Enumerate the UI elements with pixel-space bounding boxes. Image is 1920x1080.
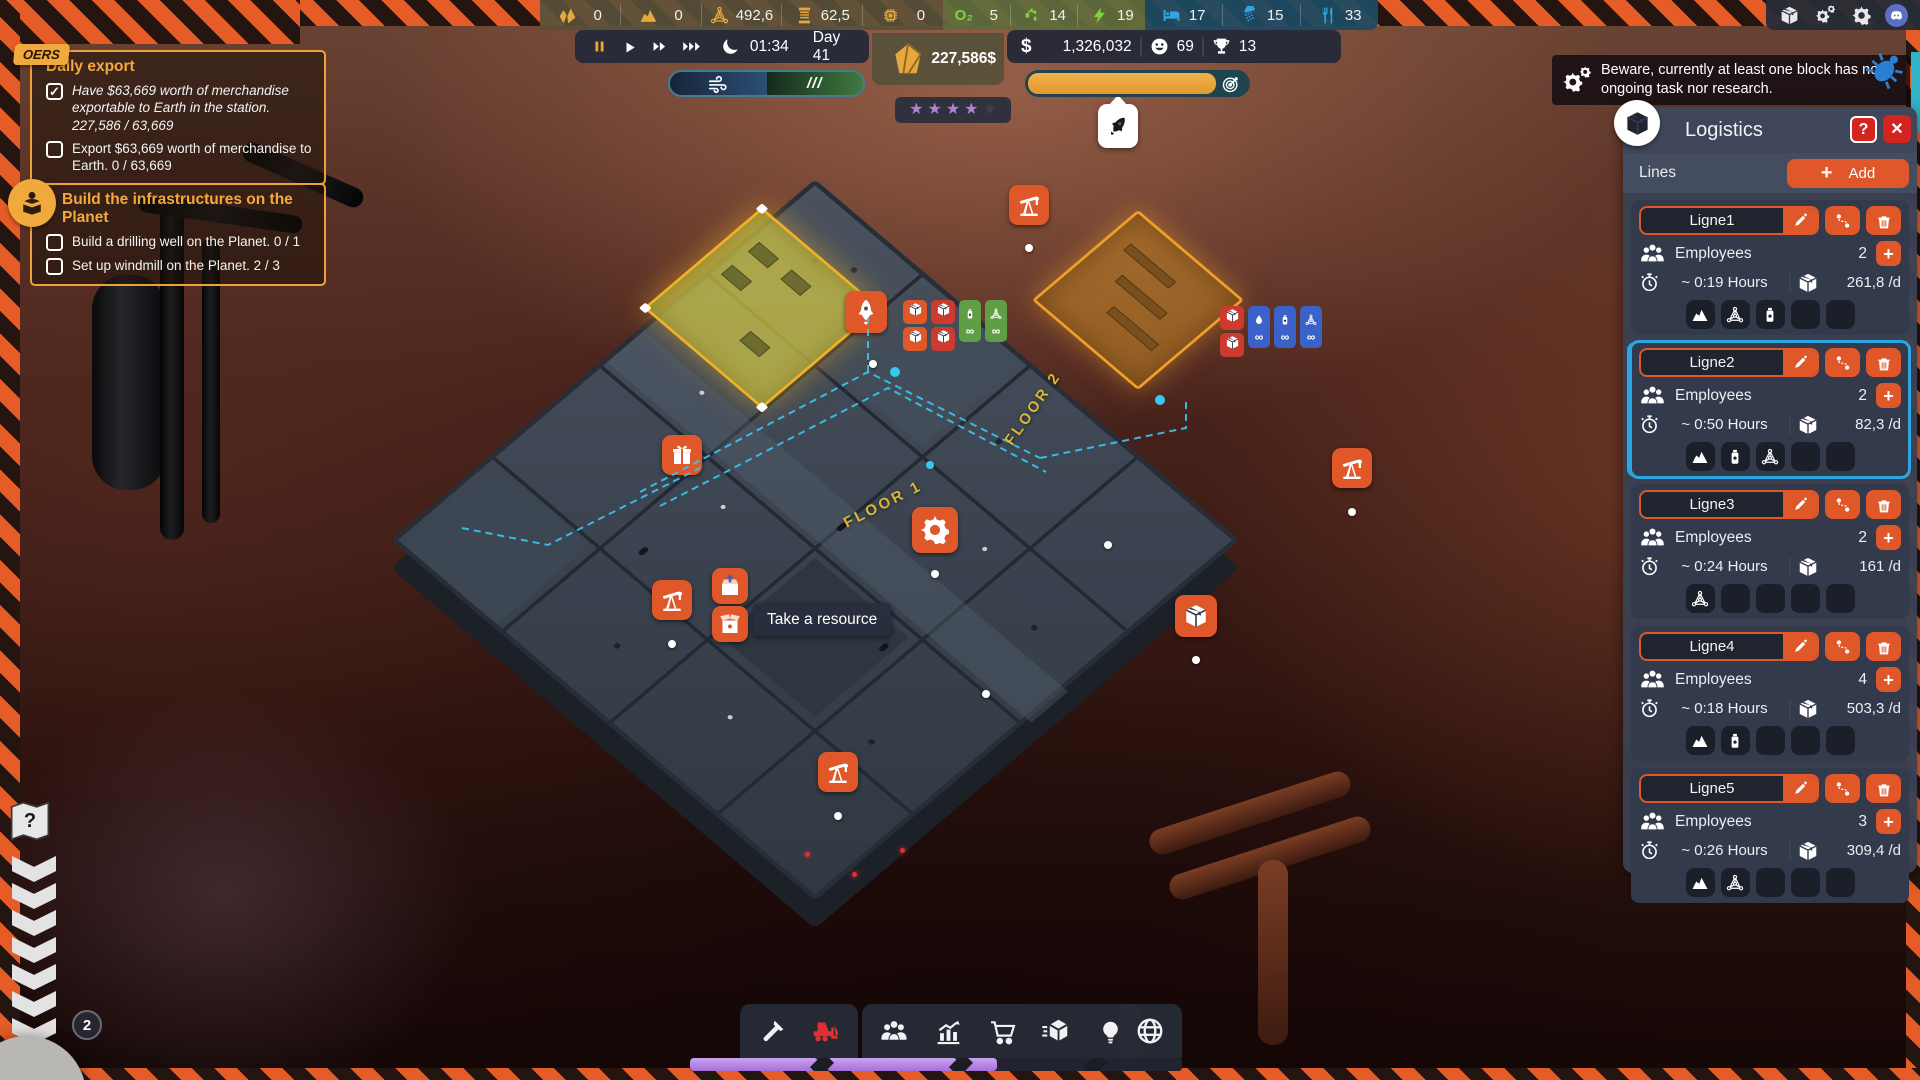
box-tag-icon[interactable] [1220, 306, 1244, 330]
storage-filter-tags[interactable]: ∞ ∞ [903, 300, 1007, 351]
time-control-bar: 01:34 Day 41 [575, 30, 869, 63]
research-button[interactable] [1814, 3, 1838, 27]
gear-icon [919, 514, 951, 546]
rocket-icon [852, 298, 880, 326]
crew-button[interactable] [878, 1015, 910, 1047]
resource-value: 62,5 [821, 7, 850, 24]
line-name-field[interactable]: Ligne1 [1641, 208, 1783, 233]
rocket-marker[interactable] [845, 291, 887, 333]
build-button[interactable] [756, 1015, 788, 1047]
slot-gold-ore-icon[interactable] [1686, 868, 1715, 897]
rust-pipe [1258, 860, 1288, 1045]
canister-icon [1279, 313, 1291, 331]
resource-counter: 33 [1300, 4, 1378, 26]
package-icon [1797, 698, 1819, 720]
star-icon: ★ [964, 102, 978, 118]
science-icon [710, 6, 729, 25]
cycle-duration: ~ 0:26 Hours [1666, 842, 1783, 859]
employees-count: 3 [1858, 813, 1867, 831]
resource-counter: 0 [620, 4, 701, 26]
delete-line-button[interactable] [1866, 206, 1901, 235]
happiness-icon [1150, 37, 1169, 56]
resource-value: 0 [665, 7, 683, 24]
resource-value: 15 [1266, 7, 1284, 24]
cycle-duration: ~ 0:19 Hours [1666, 274, 1783, 291]
trophy-icon [1212, 37, 1231, 56]
slot-canister-icon[interactable] [1756, 300, 1785, 329]
logistics-line-card[interactable]: Ligne4 Employees 4 + ~ 0:18 Hours 503,3 … [1631, 626, 1909, 761]
resource-counter: 0 [540, 4, 620, 26]
gold-nugget-icon [889, 40, 927, 78]
boxput-icon [718, 574, 742, 598]
add-employee-button[interactable]: + [1876, 241, 1901, 266]
people-icon [879, 1016, 909, 1046]
package-icon [1779, 5, 1800, 26]
logistics-button[interactable] [1040, 1015, 1072, 1047]
quest-title: Build the infrastructures on the Planet [62, 191, 312, 227]
employees-icon [1639, 808, 1666, 835]
ff2-icon [652, 39, 669, 54]
empty-slot[interactable] [1756, 868, 1785, 897]
resource-counter: 19 [1077, 4, 1145, 26]
export-value-counter: 227,586$ [872, 33, 1004, 85]
slot-science-icon[interactable] [1756, 442, 1785, 471]
tutorial-badge [8, 179, 56, 227]
edit-name-button[interactable] [1783, 492, 1817, 517]
resource-value: 17 [1188, 7, 1206, 24]
package-icon [1797, 556, 1819, 578]
edit-name-button[interactable] [1783, 208, 1817, 233]
fast-forward-button[interactable] [650, 35, 671, 59]
employees-icon [1639, 524, 1666, 551]
daily-rate: 503,3 /d [1825, 700, 1901, 717]
star-icon: ★ [909, 102, 923, 118]
wind-icon [707, 73, 729, 95]
empty-slot[interactable] [1756, 726, 1785, 755]
happiness-value: 69 [1177, 38, 1194, 56]
xp-progress-bar [690, 1058, 1182, 1071]
station-rating: ★★★★★ [895, 97, 1011, 123]
resource-value: 492,6 [736, 7, 774, 24]
night-icon [721, 37, 740, 56]
discord-icon [1889, 8, 1904, 23]
lines-header: Lines + Add [1623, 153, 1917, 193]
delete-line-button[interactable] [1866, 490, 1901, 519]
empty-slot[interactable] [1756, 584, 1785, 613]
slot-canister-icon[interactable] [1721, 442, 1750, 471]
daily-rate: 82,3 /d [1825, 416, 1901, 433]
personread-icon [18, 189, 46, 217]
resource-slots [1639, 442, 1901, 471]
box-tag-icon[interactable] [931, 327, 955, 351]
discord-button[interactable] [1885, 4, 1908, 27]
system-tray [1766, 0, 1920, 30]
canister-icon [964, 307, 976, 325]
resource-value: 14 [1048, 7, 1066, 24]
resource-value: 0 [584, 7, 602, 24]
pump-icon [825, 759, 851, 785]
ff3-icon [681, 39, 703, 54]
resource-tag-canister[interactable]: ∞ [1274, 306, 1296, 348]
empty-slot[interactable] [1791, 300, 1820, 329]
task-text: Have $63,669 worth of merchandise export… [72, 82, 314, 134]
empty-slot[interactable] [1826, 442, 1855, 471]
science-icon [990, 307, 1002, 325]
resource-counter: 14 [1010, 4, 1078, 26]
add-employee-button[interactable]: + [1876, 809, 1901, 834]
oil-pump-marker[interactable] [1009, 185, 1049, 225]
resource-tag-water[interactable]: ∞ [1248, 306, 1270, 348]
resource-counter: 0 [862, 4, 943, 26]
task-checkbox[interactable]: ✓ [46, 83, 63, 100]
build-toolbar [740, 1004, 858, 1058]
delete-line-button[interactable] [1866, 632, 1901, 661]
employees-label: Employees [1675, 529, 1849, 547]
box-marker[interactable] [1175, 595, 1217, 637]
box-tag-icon[interactable] [903, 327, 927, 351]
wind-indicator[interactable] [670, 72, 767, 95]
daily-rate: 261,8 /d [1825, 274, 1901, 291]
line-name-field[interactable]: Ligne3 [1641, 492, 1783, 517]
delete-line-button[interactable] [1866, 774, 1901, 803]
task-checkbox[interactable] [46, 141, 63, 158]
oil-pump-marker[interactable] [652, 580, 692, 620]
resource-value: 19 [1116, 7, 1134, 24]
level-badge: 2 [72, 1010, 102, 1040]
logistics-line-card[interactable]: Ligne3 Employees 2 + ~ 0:24 Hours 161 /d [1631, 484, 1909, 619]
slot-gold-ore-icon[interactable] [1686, 300, 1715, 329]
oxygen-icon: O₂ [955, 7, 973, 24]
cart-icon [988, 1017, 1017, 1046]
cycle-duration: ~ 0:18 Hours [1666, 700, 1783, 717]
resource-slots [1639, 868, 1901, 897]
gears-icon [1562, 65, 1592, 95]
gear-icon [1851, 5, 1872, 26]
fuel-tank [92, 275, 166, 490]
target-icon [1216, 74, 1241, 94]
gear-marker[interactable] [912, 507, 958, 553]
resource-slots [1639, 726, 1901, 755]
dollar-icon: $ [1021, 36, 1032, 58]
resource-counter: 15 [1222, 4, 1300, 26]
package-icon [936, 329, 951, 349]
management-toolbar [862, 1004, 1142, 1058]
employees-count: 2 [1858, 529, 1867, 547]
trophy-value: 13 [1239, 38, 1256, 56]
empty-slot[interactable] [1826, 300, 1855, 329]
quest-panel-planet[interactable]: Build the infrastructures on the Planet … [30, 183, 326, 286]
resource-value: 5 [980, 7, 998, 24]
task-text: Export $63,669 worth of merchandise to E… [72, 140, 314, 175]
line-name-field[interactable]: Ligne4 [1641, 634, 1783, 659]
employees-icon [1639, 382, 1666, 409]
line-name-field[interactable]: Ligne5 [1641, 776, 1783, 801]
empty-slot[interactable] [1791, 726, 1820, 755]
task-text: Set up windmill on the Planet. 2 / 3 [72, 257, 280, 274]
gears2-icon [1815, 4, 1837, 26]
energy-icon [1090, 6, 1109, 25]
quest-title: Daily export [46, 58, 314, 76]
stopwatch-icon [1639, 414, 1660, 435]
quest-task: ✓Have $63,669 worth of merchandise expor… [46, 82, 314, 134]
logistics-icon [1614, 100, 1660, 146]
empty-slot[interactable] [1791, 868, 1820, 897]
planet-button[interactable] [1134, 1015, 1166, 1047]
employees-label: Employees [1675, 387, 1849, 405]
employees-icon [1639, 240, 1666, 267]
edit-route-button[interactable] [1825, 348, 1860, 377]
chart-icon [934, 1017, 963, 1046]
edit-name-button[interactable] [1783, 350, 1817, 375]
demolish-button[interactable] [810, 1015, 842, 1047]
rocket-pin[interactable] [1098, 104, 1138, 148]
package-icon [908, 329, 923, 349]
star-icon: ★ [946, 102, 960, 118]
electronics-icon [881, 6, 900, 25]
empty-slot[interactable] [1826, 868, 1855, 897]
map-help-button[interactable]: ? [10, 798, 50, 844]
employees-icon [1639, 666, 1666, 693]
crystal-icon [558, 6, 577, 25]
package-icon [1183, 603, 1209, 629]
package-icon [1797, 840, 1819, 862]
orders-badge: OERS [13, 44, 70, 65]
close-button[interactable]: ✕ [1883, 115, 1911, 143]
resource-slots [1639, 584, 1901, 613]
pause-button[interactable] [589, 35, 610, 59]
goal-progress-fill [1028, 73, 1216, 94]
employees-count: 2 [1858, 387, 1867, 405]
gold-ore-icon [639, 6, 658, 25]
employees-label: Employees [1675, 245, 1849, 263]
storage-filter-tags[interactable]: ∞ ∞ ∞ [1220, 306, 1322, 357]
market-button[interactable] [986, 1015, 1018, 1047]
slot-science-icon[interactable] [1721, 300, 1750, 329]
logistics-header: Logistics ? ✕ [1623, 107, 1917, 153]
put-resource-button[interactable] [712, 568, 748, 604]
blueprints-button[interactable] [1778, 3, 1802, 27]
pump-icon [659, 587, 685, 613]
moon-icon [721, 37, 740, 56]
cycle-duration: ~ 0:24 Hours [1666, 558, 1783, 575]
slot-canister-icon[interactable] [1721, 726, 1750, 755]
quest-task: Build a drilling well on the Planet. 0 /… [46, 233, 314, 251]
water-icon [1022, 6, 1041, 25]
edit-route-button[interactable] [1825, 632, 1860, 661]
rocket-icon [1106, 114, 1130, 138]
shower-icon [1240, 6, 1259, 25]
pump-icon [1016, 192, 1042, 218]
help-button[interactable]: ? [1850, 116, 1877, 143]
globe-icon [1135, 1016, 1165, 1046]
edit-route-button[interactable] [1825, 774, 1860, 803]
alert-banner[interactable]: Beware, currently at least one block has… [1552, 55, 1910, 105]
star-icon: ★ [983, 102, 997, 118]
thread-icon [795, 6, 814, 25]
boxtake-icon [718, 612, 742, 636]
add-line-button[interactable]: + Add [1787, 159, 1909, 188]
life-support-resource-bar: O₂51419 [943, 0, 1145, 30]
tooltip: Take a resource [753, 603, 891, 636]
growth-indicator[interactable]: /// [767, 72, 864, 95]
status-bar: $ 1,326,032 69 13 [1007, 30, 1341, 63]
package-icon [1797, 414, 1819, 436]
gift-icon [670, 443, 694, 467]
resource-tag-canister[interactable]: ∞ [959, 300, 981, 342]
stopwatch-icon [1639, 840, 1660, 861]
stopwatch-icon [1639, 698, 1660, 719]
money-value: 1,326,032 [1040, 38, 1132, 56]
settings-button[interactable] [1849, 3, 1873, 27]
drop-icon [1253, 313, 1265, 331]
dozer-icon [810, 1015, 842, 1047]
add-employee-button[interactable]: + [1876, 383, 1901, 408]
cycle-duration: ~ 0:50 Hours [1666, 416, 1783, 433]
employees-count: 4 [1858, 671, 1867, 689]
box-tag-icon[interactable] [1220, 333, 1244, 357]
oil-pump-marker[interactable] [818, 752, 858, 792]
empty-slot[interactable] [1826, 726, 1855, 755]
game-screen: FLOOR 1 FLOOR 2 ∞ ∞ [0, 0, 1920, 1080]
box-tag-icon[interactable] [903, 300, 927, 324]
edit-name-button[interactable] [1783, 776, 1817, 801]
package-icon [1225, 308, 1240, 328]
cube-icon [1041, 1016, 1071, 1046]
resource-value: 33 [1344, 7, 1362, 24]
plus-icon: + [1821, 163, 1833, 183]
star-icon: ★ [927, 102, 941, 118]
resource-counter: 17 [1145, 4, 1222, 26]
empty-slot[interactable] [1791, 442, 1820, 471]
package-icon [1225, 335, 1240, 355]
task-checkbox[interactable] [46, 234, 63, 251]
edit-name-button[interactable] [1783, 634, 1817, 659]
lines-label: Lines [1639, 164, 1676, 182]
task-text: Build a drilling well on the Planet. 0 /… [72, 233, 300, 250]
employees-label: Employees [1675, 671, 1849, 689]
comfort-resource-bar: 171533 [1145, 0, 1378, 30]
slot-science-icon[interactable] [1721, 868, 1750, 897]
slot-gold-ore-icon[interactable] [1686, 442, 1715, 471]
pump-icon [1339, 455, 1365, 481]
package-icon [1797, 272, 1819, 294]
resource-counter: 492,6 [701, 4, 782, 26]
statistics-button[interactable] [932, 1015, 964, 1047]
resource-tag-science[interactable]: ∞ [985, 300, 1007, 342]
panel-title: Logistics [1685, 119, 1763, 142]
hammer-icon [758, 1017, 786, 1045]
hazard-border-corner [0, 0, 300, 44]
slot-science-icon[interactable] [1686, 584, 1715, 613]
play-icon [623, 40, 637, 54]
edit-route-button[interactable] [1825, 206, 1860, 235]
planet-toolbar [1118, 1004, 1182, 1058]
fastest-forward-button[interactable] [681, 35, 703, 59]
package-icon [936, 302, 951, 322]
slot-gold-ore-icon[interactable] [1686, 726, 1715, 755]
play-button[interactable] [620, 35, 641, 59]
employees-label: Employees [1675, 813, 1849, 831]
resource-counter: 62,5 [781, 4, 862, 26]
empty-slot[interactable] [1721, 584, 1750, 613]
daily-rate: 161 /d [1825, 558, 1901, 575]
export-value: 227,586$ [931, 50, 996, 68]
logistics-line-card[interactable]: Ligne2 Employees 2 + ~ 0:50 Hours 82,3 /… [1631, 342, 1909, 477]
quest-panel-daily-export[interactable]: OERS Daily export ✓Have $63,669 worth of… [30, 50, 326, 185]
logistics-line-card[interactable]: Ligne1 Employees 2 + ~ 0:19 Hours 261,8 … [1631, 200, 1909, 335]
take-resource-button[interactable] [712, 606, 748, 642]
quest-task: Export $63,669 worth of merchandise to E… [46, 140, 314, 175]
logistics-line-card[interactable]: Ligne5 Employees 3 + ~ 0:26 Hours 309,4 … [1631, 768, 1909, 903]
supply-drop-marker[interactable] [662, 435, 702, 475]
resource-counter: O₂5 [943, 4, 1010, 26]
stopwatch-icon [1639, 272, 1660, 293]
resource-value: 0 [907, 7, 925, 24]
clock: 01:34 [750, 38, 789, 56]
empty-slot[interactable] [1791, 584, 1820, 613]
box-tag-icon[interactable] [931, 300, 955, 324]
oil-pump-marker[interactable] [1332, 448, 1372, 488]
materials-resource-bar: 00492,662,50 [540, 0, 943, 30]
resource-tag-science[interactable]: ∞ [1300, 306, 1322, 348]
science-icon [1305, 313, 1317, 331]
package-icon [1624, 110, 1651, 137]
edit-route-button[interactable] [1825, 490, 1860, 519]
add-employee-button[interactable]: + [1876, 667, 1901, 692]
goal-progress-bar [1025, 70, 1250, 97]
stopwatch-icon [1639, 556, 1660, 577]
resource-slots [1639, 300, 1901, 329]
logistics-panel: Logistics ? ✕ Lines + Add Ligne1 Employe… [1623, 107, 1917, 873]
food-icon [1318, 6, 1337, 25]
day-counter: Day 41 [813, 29, 855, 65]
environment-pill: /// [668, 70, 865, 97]
add-employee-button[interactable]: + [1876, 525, 1901, 550]
empty-slot[interactable] [1826, 584, 1855, 613]
employees-count: 2 [1858, 245, 1867, 263]
bed-icon [1162, 6, 1181, 25]
alert-text: Beware, currently at least one block has… [1601, 61, 1900, 99]
task-checkbox[interactable] [46, 258, 63, 275]
line-name-field[interactable]: Ligne2 [1641, 350, 1783, 375]
delete-line-button[interactable] [1866, 348, 1901, 377]
daily-rate: 309,4 /d [1825, 842, 1901, 859]
package-icon [908, 302, 923, 322]
pause-icon [592, 39, 607, 54]
quest-task: Set up windmill on the Planet. 2 / 3 [46, 257, 314, 275]
